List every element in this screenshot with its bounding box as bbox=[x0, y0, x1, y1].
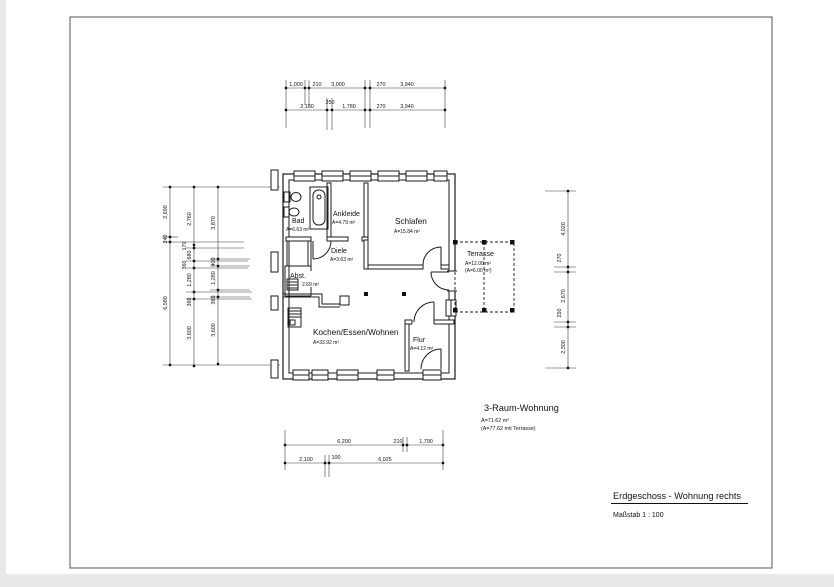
dim-label: 4,020 bbox=[561, 222, 567, 236]
dim-label: 3,940 bbox=[400, 82, 414, 88]
drawing-title: Erdgeschoss - Wohnung rechts bbox=[613, 491, 741, 501]
dim-label: 1,780 bbox=[342, 104, 356, 110]
dim-label: 2,670 bbox=[561, 289, 567, 303]
dim-label: 3,870 bbox=[211, 216, 217, 230]
party-wall-stub bbox=[271, 296, 278, 310]
wall-diele-schlafen bbox=[364, 240, 368, 269]
terrace-door-opening bbox=[447, 271, 457, 291]
floor-plan-drawing: 1,000 210 3,000 270 3,940 2,180 250 1,78… bbox=[0, 0, 834, 587]
wall-schlafen-south bbox=[368, 265, 423, 269]
column-marker bbox=[402, 292, 406, 296]
dim-label: 1,000 bbox=[289, 82, 303, 88]
scan-edge-left bbox=[0, 0, 6, 587]
room-label-kochen: Kochen/Essen/Wohnen bbox=[313, 328, 399, 337]
dim-label: 250 bbox=[326, 100, 335, 106]
pier bbox=[340, 296, 349, 305]
dim-label: 6,025 bbox=[378, 457, 392, 463]
room-label-ankleide: Ankleide bbox=[333, 211, 360, 218]
wall-schlafen-south2 bbox=[441, 265, 449, 269]
summary-area-terrace: (A=77.62 mit Terrasse) bbox=[481, 426, 536, 432]
wall-ankleide-south bbox=[327, 237, 348, 241]
dim-label: 250 bbox=[557, 309, 563, 318]
room-area-terrasse: A=12.00 m² bbox=[465, 261, 491, 267]
room-label-abst: Abst. bbox=[290, 273, 306, 280]
room-area-bad: A=6.63 m² bbox=[286, 227, 310, 233]
dim-label: 360 bbox=[211, 296, 217, 305]
dim-label: 360 bbox=[187, 298, 193, 307]
room-label-bad: Bad bbox=[292, 218, 305, 225]
scanned-floor-plan-page: 1,000 210 3,000 270 3,940 2,180 250 1,78… bbox=[0, 0, 834, 587]
room-area-flur: A=4.12 m² bbox=[410, 346, 434, 352]
dim-label: 270 bbox=[377, 82, 386, 88]
party-wall-stub bbox=[271, 170, 278, 190]
room-area-diele: A=3.63 m² bbox=[330, 257, 354, 263]
dim-label: 270 bbox=[377, 104, 386, 110]
dim-label: 3,000 bbox=[331, 82, 345, 88]
room-label-schlafen: Schlafen bbox=[395, 217, 427, 226]
dim-label: 6,200 bbox=[337, 439, 351, 445]
room-label-terrasse: Terrasse bbox=[467, 251, 494, 258]
dim-label: 2,180 bbox=[300, 104, 314, 110]
wall-closet-east bbox=[308, 241, 311, 266]
drawing-scale: Maßstab 1 : 100 bbox=[613, 512, 664, 519]
dim-label: 1,790 bbox=[419, 439, 433, 445]
dim-label: 2,690 bbox=[163, 205, 169, 219]
dim-label: 1,280 bbox=[211, 271, 217, 285]
wall-ankleide-schlafen bbox=[364, 183, 368, 240]
dim-label: 680 bbox=[187, 251, 193, 260]
wall-bad-south bbox=[286, 237, 311, 241]
dim-label: 210 bbox=[394, 439, 403, 445]
room-area-ankleide: A=4.79 m² bbox=[332, 220, 356, 226]
room-label-diele: Diele bbox=[331, 248, 347, 255]
wall-flur-west bbox=[405, 324, 409, 371]
room-area-kochen: A=33.92 m² bbox=[313, 340, 339, 346]
dim-label: 240 bbox=[163, 235, 169, 244]
dim-label: 3,940 bbox=[400, 104, 414, 110]
flur-door-opening bbox=[412, 319, 434, 325]
room-area-schlafen: A=15.84 m² bbox=[394, 229, 420, 235]
summary-title: 3-Raum-Wohnung bbox=[484, 403, 559, 413]
party-wall-stub bbox=[271, 360, 278, 378]
room-label-flur: Flur bbox=[413, 337, 426, 344]
dim-label: 170 bbox=[182, 242, 188, 251]
summary-area: A=71.62 m² bbox=[481, 418, 509, 424]
dim-label: 2,300 bbox=[561, 340, 567, 354]
room-area2-terrasse: (A=6.00 m²) bbox=[465, 268, 492, 274]
dim-label: 6,580 bbox=[163, 296, 169, 310]
dim-label: 100 bbox=[332, 455, 341, 461]
dim-label: 270 bbox=[557, 254, 563, 263]
dim-label: 3,600 bbox=[187, 326, 193, 340]
dim-label: 3,600 bbox=[211, 323, 217, 337]
dim-label: 400 bbox=[211, 258, 217, 267]
dim-label: 2,760 bbox=[187, 212, 193, 226]
scan-edge-bottom bbox=[0, 574, 834, 587]
column-marker bbox=[364, 292, 368, 296]
dim-label: 210 bbox=[313, 82, 322, 88]
dim-label: 360 bbox=[182, 261, 188, 270]
party-wall-stub bbox=[271, 252, 278, 272]
dim-label: 2,100 bbox=[299, 457, 313, 463]
dim-label: 1,280 bbox=[187, 273, 193, 287]
room-area-abst: 2.69 m² bbox=[302, 282, 319, 288]
